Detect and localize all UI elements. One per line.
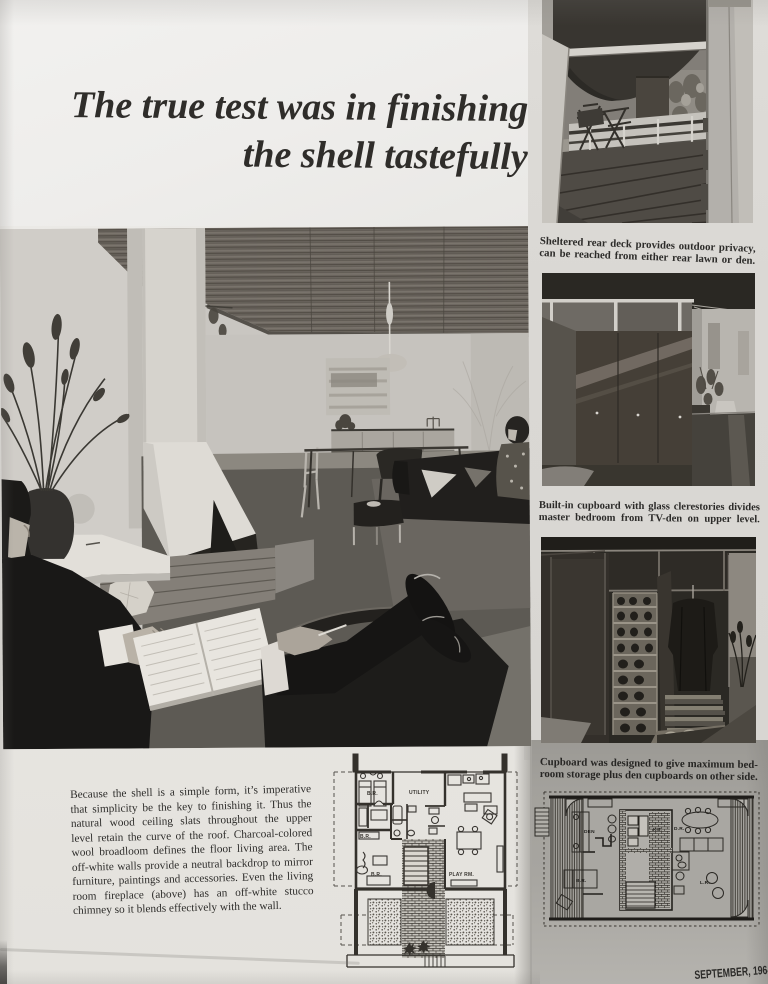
svg-text:B.R.: B.R. <box>576 878 586 884</box>
svg-text:DEN: DEN <box>584 829 595 835</box>
svg-text:UTILITY: UTILITY <box>409 790 430 796</box>
svg-text:B.R.: B.R. <box>371 872 382 878</box>
svg-text:KIT.: KIT. <box>653 827 662 832</box>
svg-text:PLAY RM.: PLAY RM. <box>449 872 474 878</box>
svg-text:B.R.: B.R. <box>360 834 371 840</box>
svg-text:D.R.: D.R. <box>674 826 684 832</box>
svg-text:B.R.: B.R. <box>367 791 378 797</box>
svg-text:L.R.: L.R. <box>700 880 710 886</box>
